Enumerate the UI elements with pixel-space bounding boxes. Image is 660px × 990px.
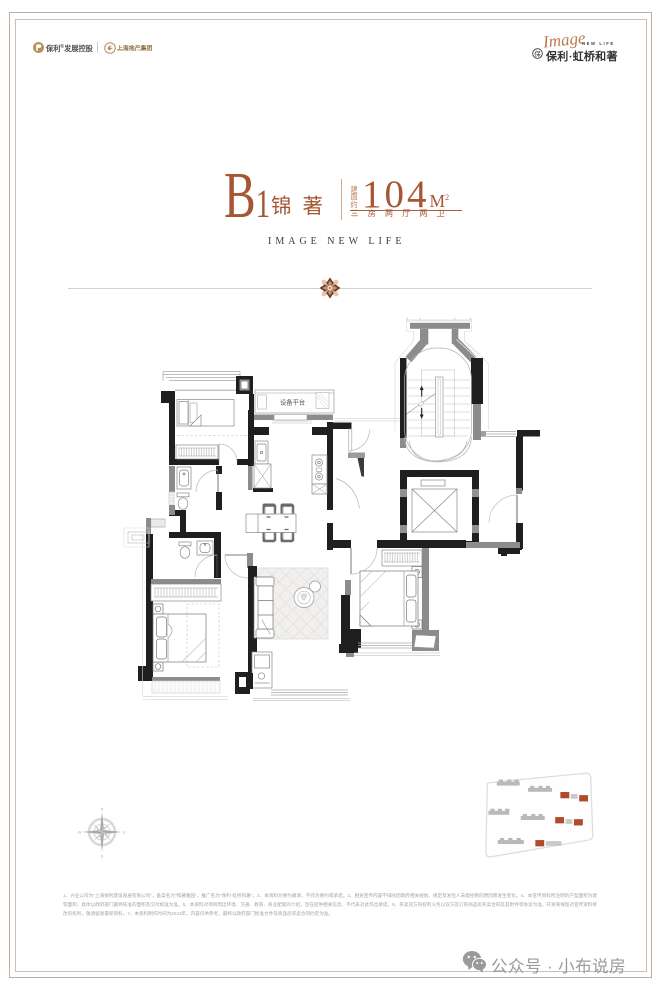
svg-text:E: E [123,830,126,835]
svg-text:W: W [78,830,82,835]
svg-text:S: S [101,854,104,859]
svg-text:N: N [101,807,104,812]
svg-text:设备平台: 设备平台 [280,398,305,407]
